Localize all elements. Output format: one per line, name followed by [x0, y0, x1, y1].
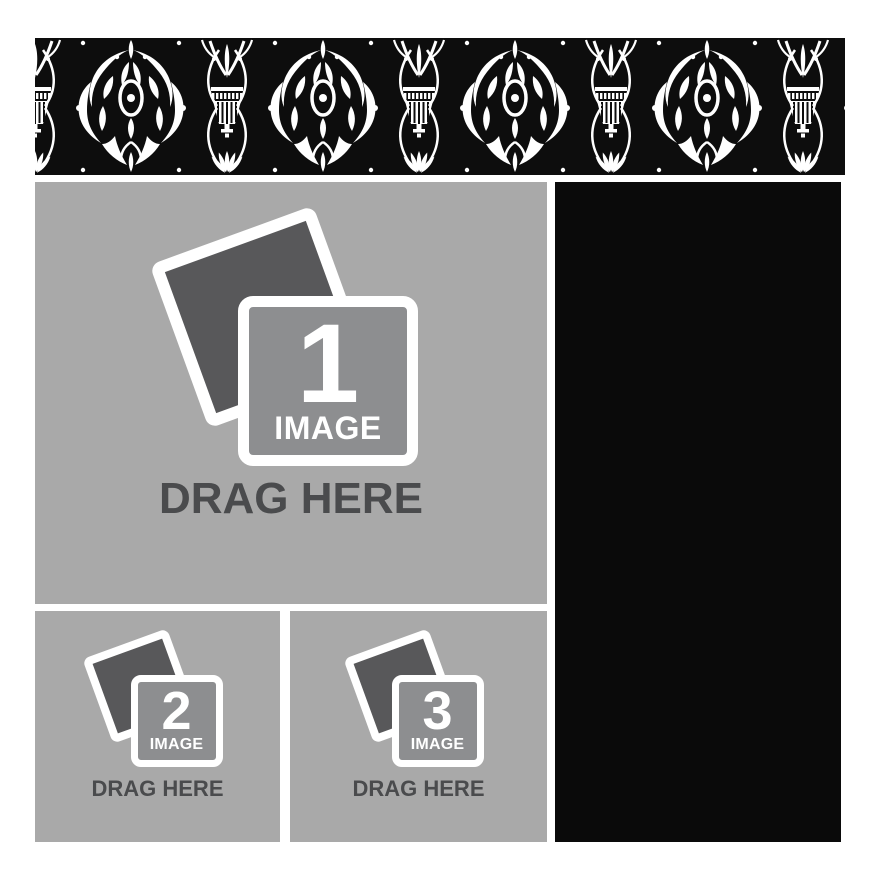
damask-pattern-icon	[35, 38, 845, 175]
image-dropzone-2[interactable]: 2 IMAGE DRAG HERE	[35, 611, 280, 842]
zone-image-label: IMAGE	[274, 412, 381, 444]
drag-here-label: DRAG HERE	[352, 776, 484, 802]
zone-image-label: IMAGE	[411, 737, 464, 753]
photo-stack-icon: 3 IMAGE	[352, 631, 486, 769]
photo-front-icon: 3 IMAGE	[392, 675, 484, 767]
image-dropzone-1[interactable]: 1 IMAGE DRAG HERE	[35, 182, 547, 604]
zone-image-label: IMAGE	[150, 737, 203, 753]
damask-border	[35, 38, 845, 175]
photo-front-icon: 1 IMAGE	[238, 296, 418, 466]
zone-number: 3	[422, 689, 452, 733]
zone-number: 1	[297, 318, 359, 410]
photo-stack-icon: 2 IMAGE	[91, 631, 225, 769]
image-dropzone-3[interactable]: 3 IMAGE DRAG HERE	[290, 611, 547, 842]
photo-front-icon: 2 IMAGE	[131, 675, 223, 767]
photo-stack-icon: 1 IMAGE	[162, 210, 420, 466]
zone-number: 2	[161, 689, 191, 733]
drag-here-label: DRAG HERE	[159, 474, 423, 524]
drag-here-label: DRAG HERE	[91, 776, 223, 802]
collage-template-canvas: 1 IMAGE DRAG HERE 2 IMAGE DRAG HERE 3 IM…	[0, 0, 882, 882]
solid-black-panel	[555, 182, 841, 842]
